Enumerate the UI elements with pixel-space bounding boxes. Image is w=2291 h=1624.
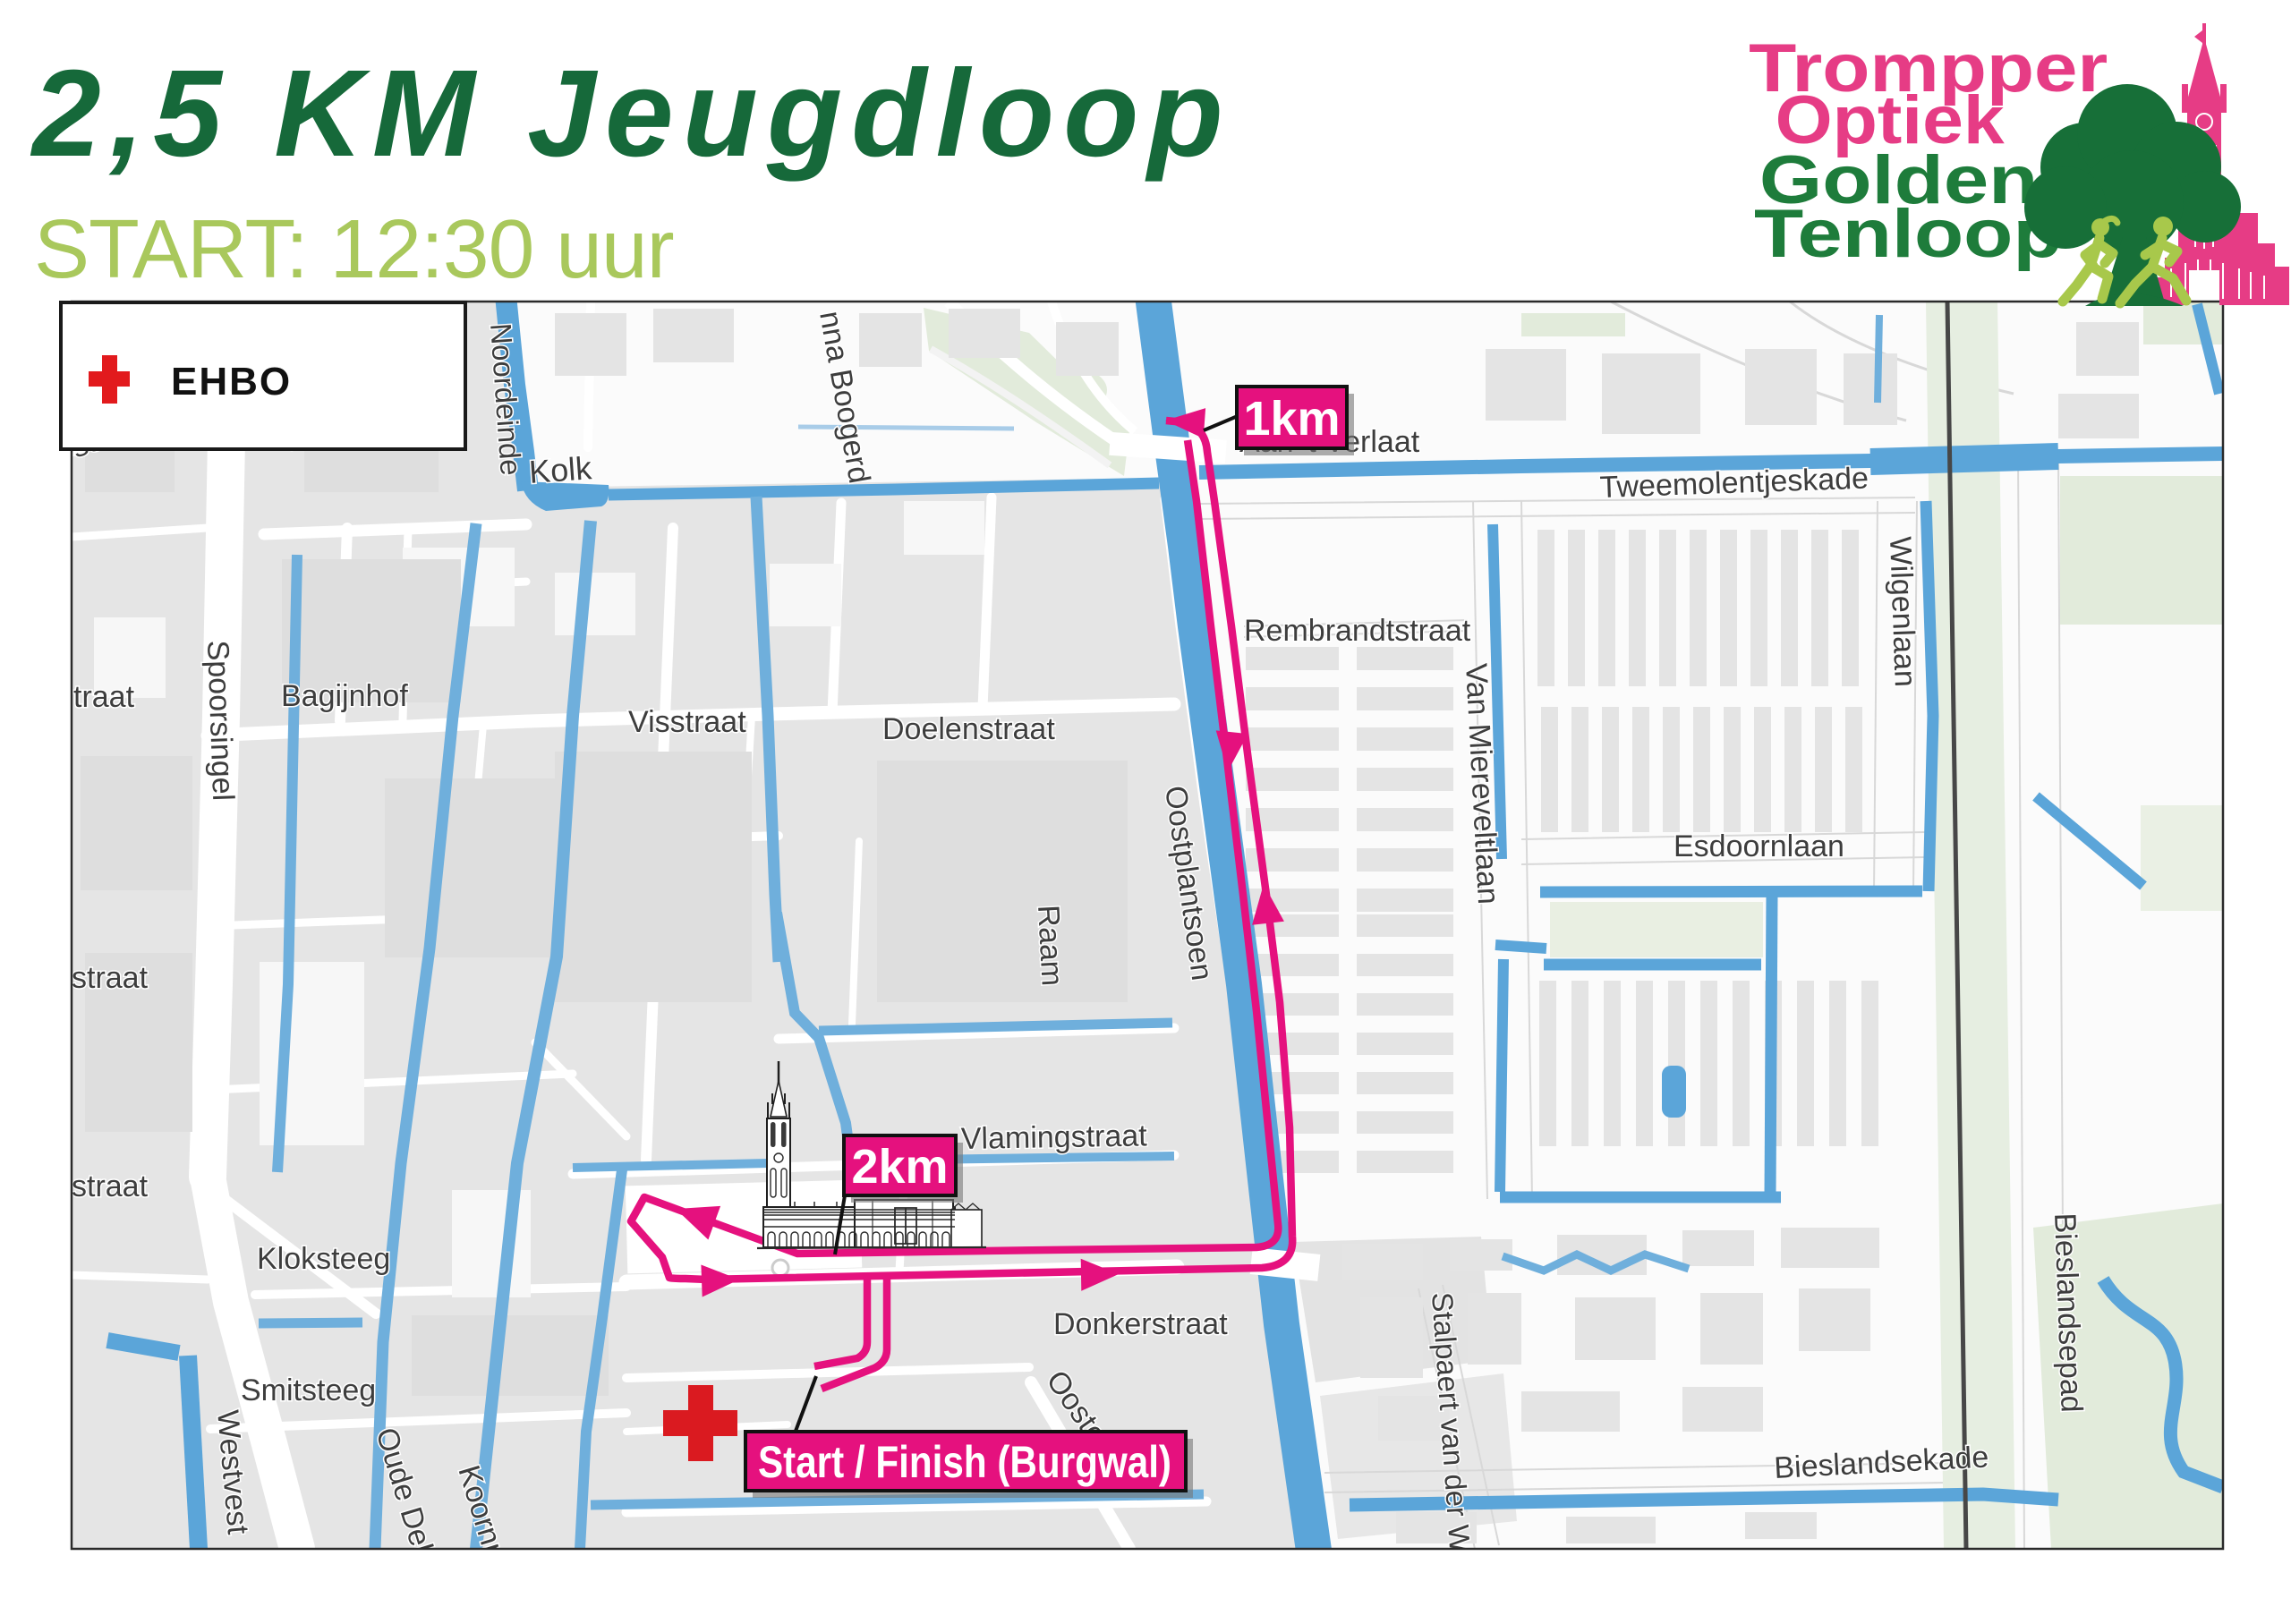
svg-text:EHBO: EHBO	[171, 360, 292, 404]
svg-text:Start / Finish (Burgwal): Start / Finish (Burgwal)	[758, 1437, 1171, 1487]
svg-text:Visstraat: Visstraat	[628, 705, 746, 739]
svg-text:Smitsteeg: Smitsteeg	[241, 1373, 376, 1407]
svg-text:straat: straat	[72, 961, 149, 995]
svg-text:Spoorsingel: Spoorsingel	[200, 640, 240, 802]
svg-text:Kloksteeg: Kloksteeg	[257, 1242, 390, 1276]
svg-text:Doelenstraat: Doelenstraat	[882, 712, 1055, 746]
svg-text:Tenloop: Tenloop	[1754, 195, 2063, 271]
svg-text:Esdoornlaan: Esdoornlaan	[1674, 829, 1844, 863]
svg-text:straat: straat	[72, 1169, 149, 1203]
svg-text:START: 12:30 uur: START: 12:30 uur	[34, 202, 674, 295]
svg-text:1km: 1km	[1243, 392, 1340, 446]
svg-text:traat: traat	[73, 680, 135, 714]
svg-text:Bagijnhof: Bagijnhof	[281, 679, 408, 713]
svg-text:Rembrandtstraat: Rembrandtstraat	[1244, 614, 1471, 648]
svg-text:Bieslandsepad: Bieslandsepad	[2048, 1212, 2089, 1413]
svg-text:Donkerstraat: Donkerstraat	[1053, 1307, 1228, 1341]
svg-text:2,5 KM Jeugdloop: 2,5 KM Jeugdloop	[30, 45, 1232, 183]
svg-text:Vlamingstraat: Vlamingstraat	[960, 1118, 1147, 1156]
svg-text:Kolk: Kolk	[528, 449, 594, 490]
svg-text:Wilgenlaan: Wilgenlaan	[1883, 536, 1922, 687]
svg-text:2km: 2km	[851, 1140, 948, 1194]
svg-text:Raam: Raam	[1031, 904, 1069, 987]
